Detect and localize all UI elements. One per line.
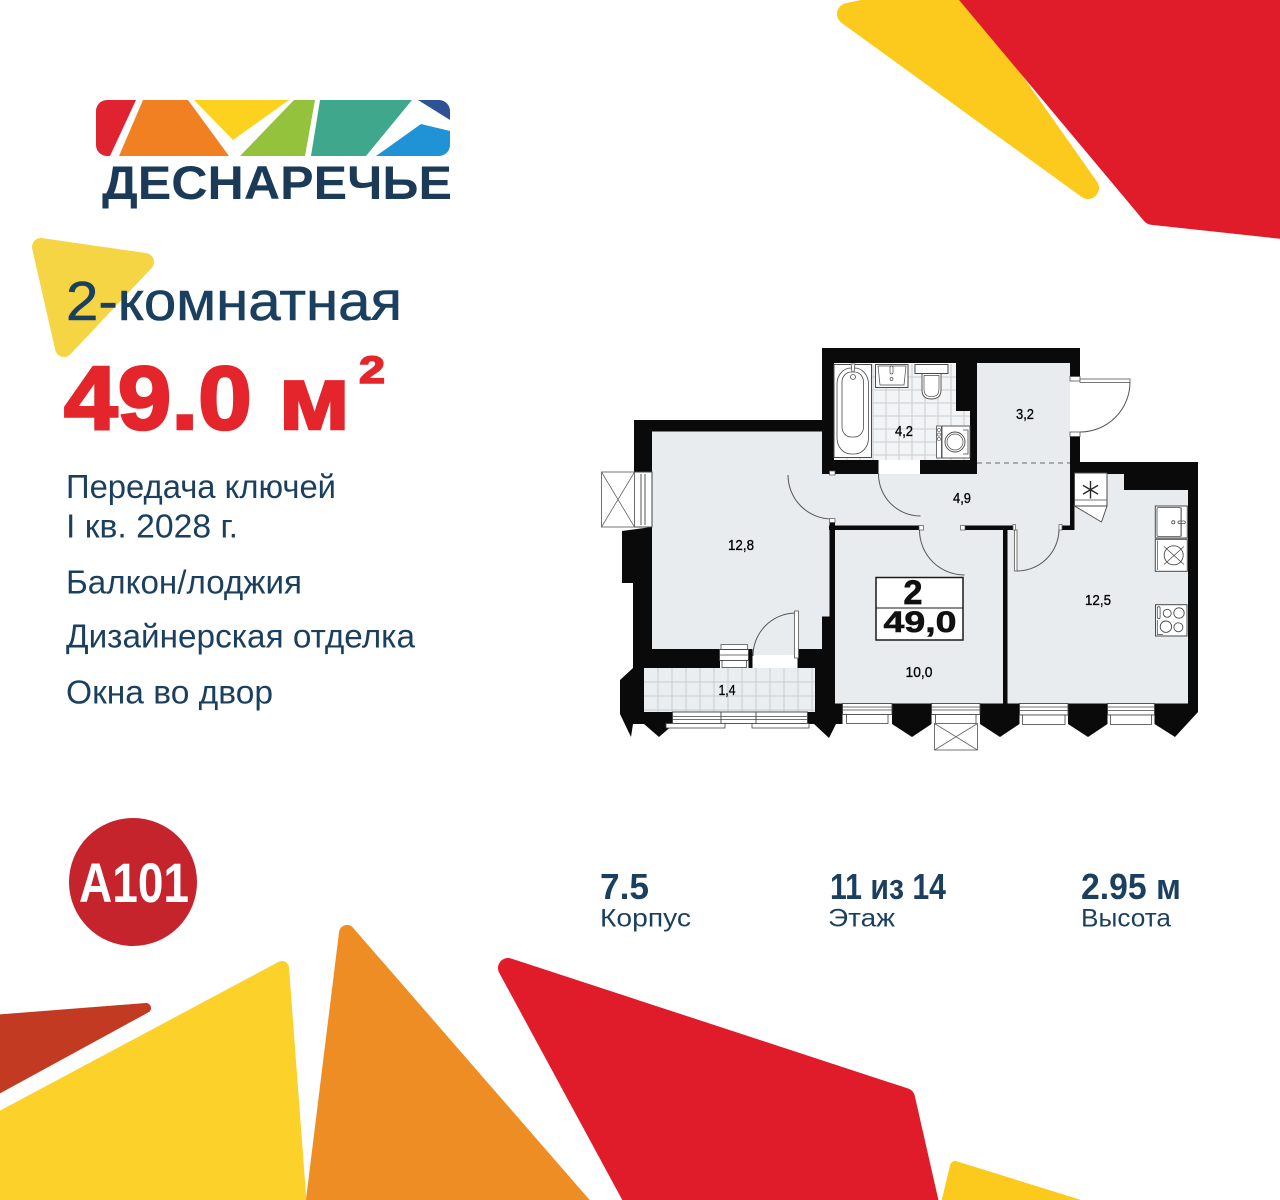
svg-text:7.5: 7.5 [600,866,649,907]
svg-text:4,9: 4,9 [953,490,971,507]
svg-text:Передача ключей: Передача ключей [66,468,336,505]
svg-text:2.95 м: 2.95 м [1081,866,1181,907]
svg-text:Окна во двор: Окна во двор [66,674,273,711]
svg-text:49.0 м: 49.0 м [64,349,350,449]
svg-text:3,2: 3,2 [1016,406,1034,423]
svg-text:Корпус: Корпус [600,905,691,933]
svg-text:2: 2 [359,350,385,392]
svg-text:1,4: 1,4 [719,682,736,699]
svg-text:2-комнатная: 2-комнатная [66,270,402,332]
svg-text:Дизайнерская отделка: Дизайнерская отделка [66,618,416,655]
svg-text:12,5: 12,5 [1085,592,1111,609]
svg-text:Высота: Высота [1081,905,1171,933]
svg-text:ДЕСНАРЕЧЬЕ: ДЕСНАРЕЧЬЕ [102,156,452,209]
svg-text:4,2: 4,2 [895,423,913,440]
svg-text:49,0: 49,0 [884,606,957,639]
svg-text:10,0: 10,0 [906,664,933,681]
svg-text:12,8: 12,8 [728,537,754,554]
svg-text:I кв. 2028 г.: I кв. 2028 г. [66,508,238,545]
svg-text:11 из 14: 11 из 14 [830,866,946,907]
svg-text:Балкон/лоджия: Балкон/лоджия [66,564,302,601]
svg-text:Этаж: Этаж [828,905,895,933]
